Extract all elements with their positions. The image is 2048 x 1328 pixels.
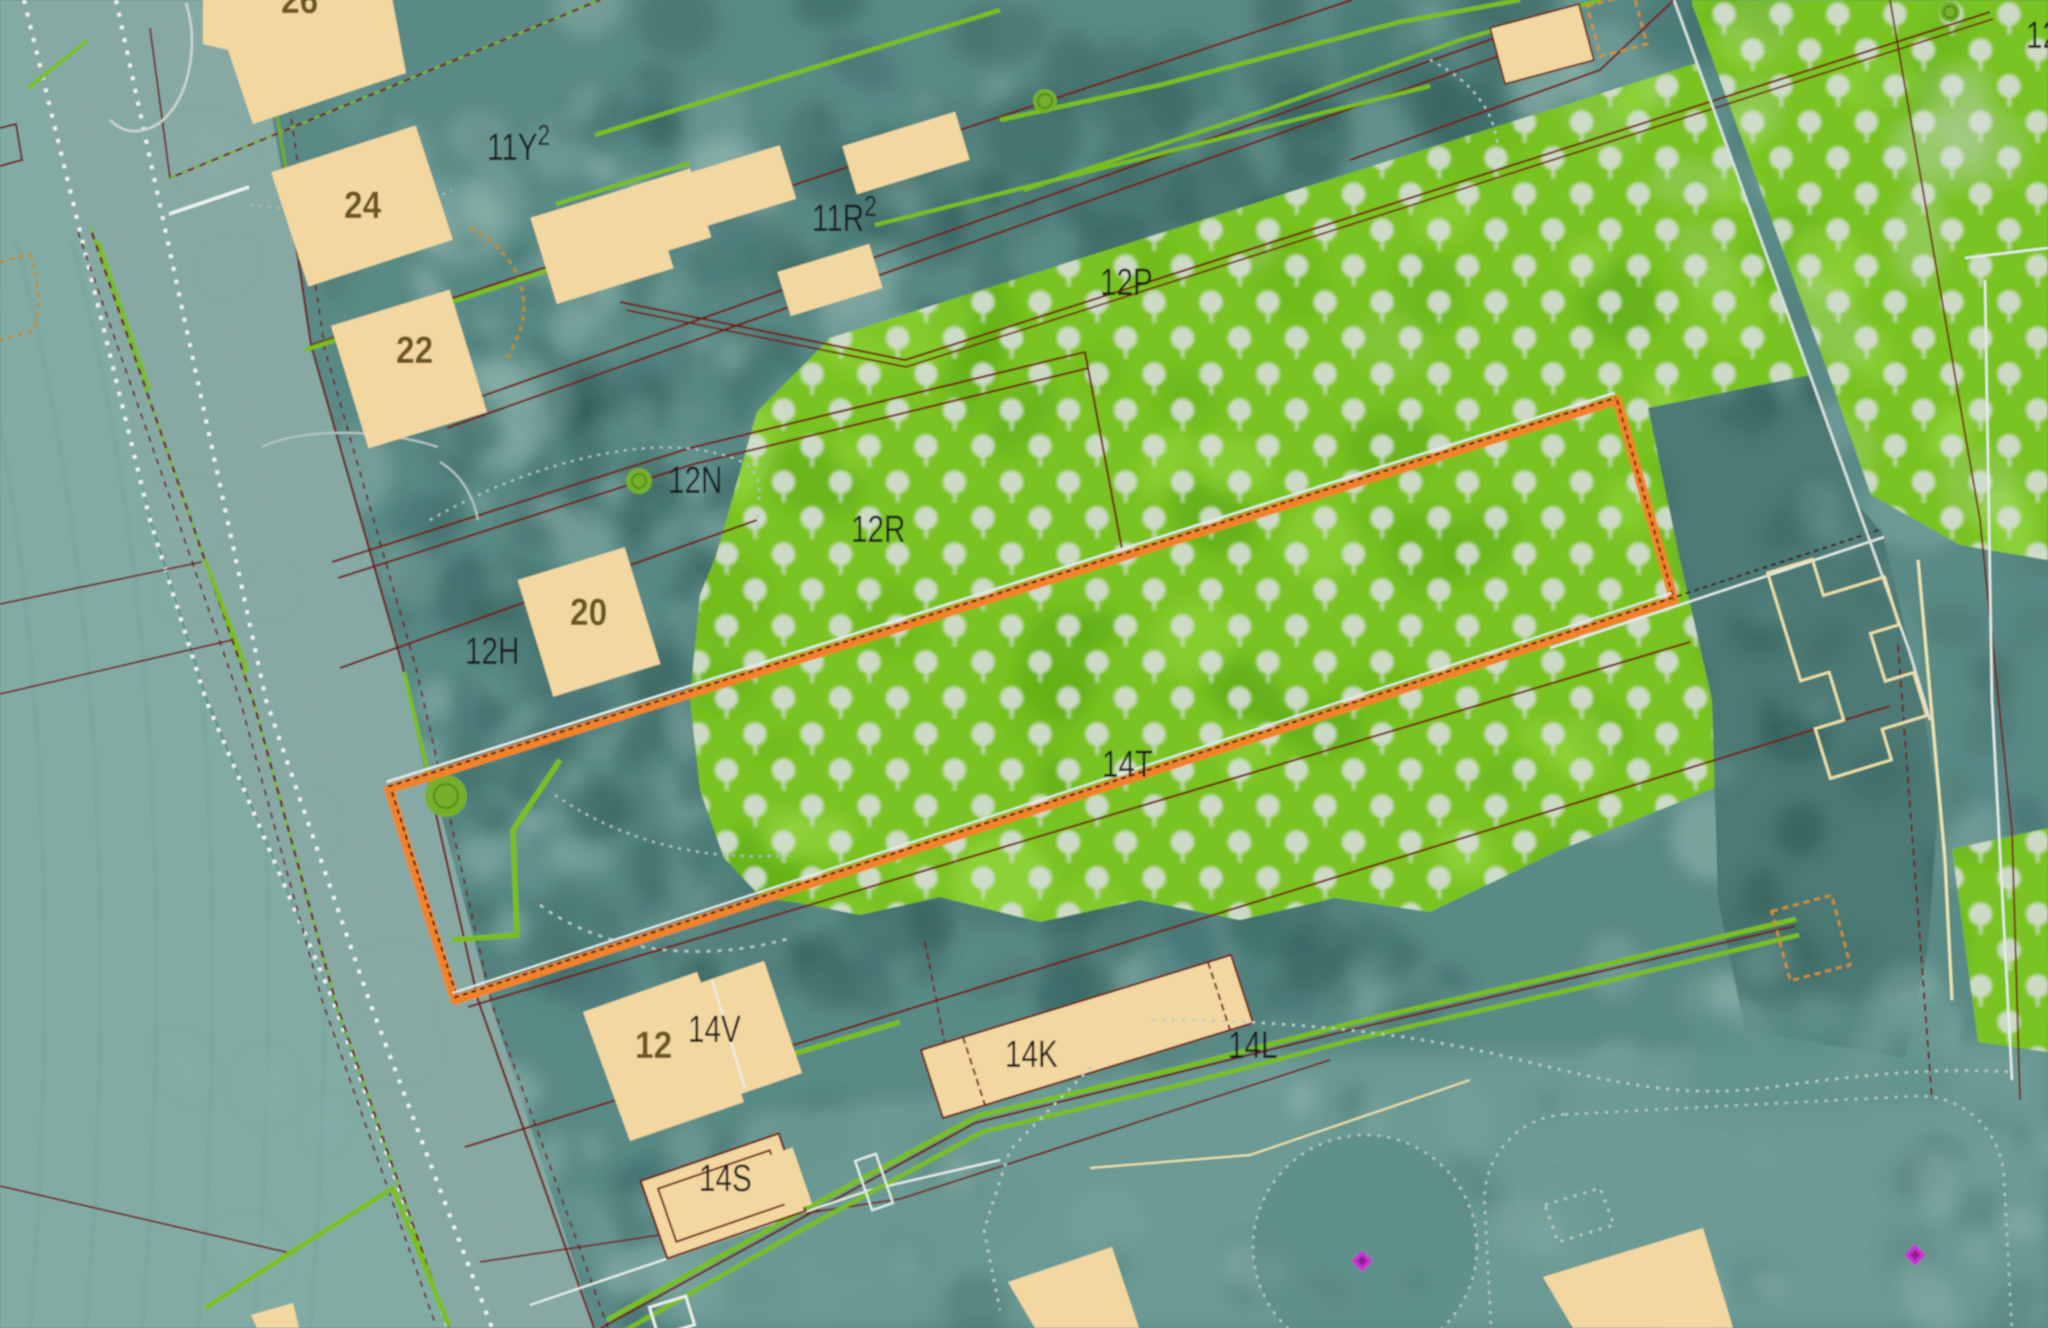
svg-text:14L: 14L (1228, 1025, 1277, 1067)
svg-text:12R: 12R (851, 509, 905, 551)
svg-text:24: 24 (344, 184, 381, 226)
svg-text:12: 12 (2026, 15, 2048, 57)
svg-text:14S: 14S (699, 1158, 752, 1200)
svg-text:14K: 14K (1005, 1034, 1058, 1076)
svg-text:26: 26 (281, 0, 318, 21)
svg-text:12P: 12P (1100, 262, 1153, 304)
svg-text:12H: 12H (465, 631, 519, 673)
svg-text:20: 20 (570, 591, 607, 633)
svg-text:12N: 12N (668, 460, 722, 502)
svg-text:14V: 14V (688, 1009, 741, 1051)
svg-text:14T: 14T (1102, 744, 1153, 786)
svg-text:22: 22 (396, 329, 433, 371)
svg-text:12: 12 (635, 1024, 672, 1066)
